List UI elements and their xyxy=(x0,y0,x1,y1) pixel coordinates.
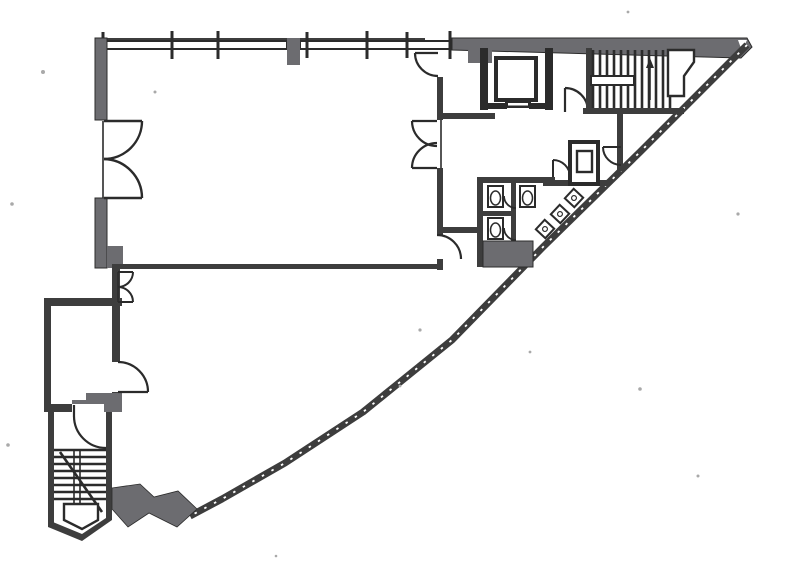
double-swing-door-small xyxy=(118,272,133,302)
stair-wall xyxy=(106,412,112,518)
double-swing-door-east xyxy=(412,120,441,168)
stall-divider xyxy=(483,211,511,216)
single-swing-door xyxy=(553,160,570,177)
single-swing-door xyxy=(437,235,461,259)
shaft-wall xyxy=(480,48,488,110)
door-opening xyxy=(72,404,104,412)
floor-plan-drawing xyxy=(0,0,787,573)
stall-divider xyxy=(511,183,516,241)
wall-segment xyxy=(95,198,107,268)
elevator-car xyxy=(496,58,536,100)
shaft-wall xyxy=(545,48,553,110)
wall-segment xyxy=(95,38,107,120)
partition-wall xyxy=(437,168,443,235)
corridor-wall xyxy=(617,114,623,171)
stairwell-northeast xyxy=(583,48,694,114)
stair-landing xyxy=(64,504,98,529)
elevator-door-slit xyxy=(508,103,528,106)
shaft-wall xyxy=(529,103,553,109)
stair-wall xyxy=(48,412,54,526)
floor-plan-canvas xyxy=(0,0,787,573)
window-bay xyxy=(103,41,287,49)
stair-landing xyxy=(668,50,694,96)
elevator xyxy=(437,48,588,119)
lobby-wall xyxy=(437,113,495,119)
duct-shaft xyxy=(483,241,533,267)
window-bay xyxy=(300,41,452,49)
service-shaft xyxy=(570,142,598,184)
annex-room-west xyxy=(44,268,148,412)
double-swing-door-west xyxy=(103,121,142,198)
stair-rail-landing xyxy=(591,76,634,85)
toilet-wall xyxy=(477,177,555,183)
annex-wall xyxy=(44,298,122,306)
toilet-block xyxy=(443,177,583,267)
wc-fixture xyxy=(520,186,535,207)
entrance-canopy xyxy=(112,484,197,527)
annex-wall xyxy=(112,304,120,362)
direction-arrow xyxy=(646,58,654,100)
service-corridor xyxy=(543,114,623,186)
north-window-wall xyxy=(95,31,452,65)
stairwell-southwest xyxy=(48,404,112,541)
annex-wall xyxy=(44,298,51,412)
wc-fixture xyxy=(488,218,503,239)
wall-stub xyxy=(443,227,477,233)
wc-fixture xyxy=(488,186,503,207)
west-perimeter-wall xyxy=(95,38,142,268)
perimeter-wall xyxy=(452,38,752,58)
wall-pier xyxy=(287,38,300,65)
large-office-room-northwest xyxy=(112,53,461,270)
wash-basin xyxy=(565,189,583,207)
toilet-wall xyxy=(477,177,483,267)
single-swing-door xyxy=(118,362,148,392)
stair-wall xyxy=(583,108,684,114)
partition-wall xyxy=(112,264,443,269)
shaft-wall xyxy=(480,103,507,109)
single-swing-door xyxy=(415,53,438,76)
